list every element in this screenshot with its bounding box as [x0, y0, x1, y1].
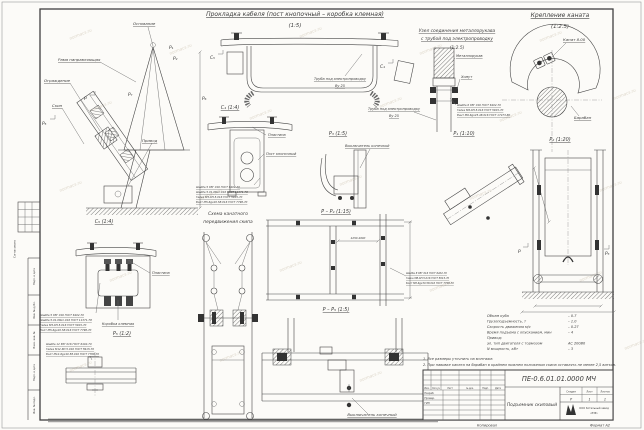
watermark-text: normacs.ru [219, 349, 243, 363]
format-label: Формат А2 [590, 424, 611, 428]
pp4-spec-line: Гайка М8-6Н.5.016 ГОСТ 5915-70 [406, 276, 450, 280]
watermark-text: normacs.ru [539, 29, 563, 43]
watermark-text: normacs.ru [613, 87, 637, 101]
drawing-name: Подъемник скиповый [507, 402, 557, 408]
hose-spec-line: Шайба 6 65Г 016 ГОСТ 6402-70 [457, 103, 501, 107]
c5-spec-line: Болт М5-6gх20.58.016 ГОСТ 7798-70 [40, 328, 92, 332]
view-cable-routing: Прокладка кабеля (пост кнопочный – короб… [206, 11, 414, 106]
view-p2-front-frame: Р₂ (1:20) Р Р₃ [518, 137, 616, 314]
tech-value: АС 200В0 [567, 342, 586, 346]
clamp-label: Хомут [460, 75, 473, 79]
pp4-spec-line: Шайба 8 65Г 016 ГОСТ 6402-70 [406, 271, 447, 275]
marker-p1: Р₁ [169, 45, 174, 51]
c4-spec-line: Гайка М5-6Н.5.016 ГОСТ 5915-70 [196, 195, 243, 199]
rev-col-header: № док. [466, 387, 474, 390]
view-c4-button-post: С₄ (1:4) Пластина Пост кнопочный Шайба 5… [196, 105, 297, 204]
cable-routing-title: Прокладка кабеля (пост кнопочный – короб… [206, 11, 384, 18]
hose-pipe-size-label: Ву 25 [389, 114, 400, 118]
tech-value: – 3 [568, 347, 573, 351]
view-rope-scheme: Схема канатного передвижения скипа [198, 211, 258, 420]
hose-unit-title-1: Узел соединения металлорукава [419, 28, 496, 34]
company-name-1: ООО Котельный завод [579, 406, 609, 410]
role-label: ГИП [425, 401, 430, 405]
view-p1-incline-detail: Р₁ (1:10) [438, 131, 550, 228]
drawing-sheet: normacs.ru normacs.ru normacs.ru normacs… [0, 0, 644, 430]
watermark-text: normacs.ru [59, 179, 83, 193]
c4-plate-label: Пластина [268, 133, 286, 137]
watermark-text: normacs.ru [299, 25, 323, 39]
hose-pipe-label: Труба под электропроводку [368, 107, 421, 111]
company-name-2: «РЗР» [590, 411, 598, 415]
view-c5-terminal-box: С₅ (1:4) Пластина Коробка клемная Шайба … [40, 219, 170, 332]
watermark-text: normacs.ru [469, 187, 493, 201]
p5-title: Р₅ (1:2) [113, 331, 131, 337]
stamp-soglasovano-label: Согласовано [13, 240, 17, 258]
c5-spec-line: Гайка М5-6Н.5.016 ГОСТ 5915-70 [40, 323, 87, 327]
sheet-value: 1 [588, 398, 590, 402]
watermark-text: normacs.ru [109, 269, 133, 283]
pp4-spec-line: Болт М8-6gх30.58.016 ГОСТ 7798-70 [406, 281, 454, 285]
c5-spec-line: Шайба 5 65Г 016 ГОСТ 6402-70 [40, 313, 84, 317]
tech-label: Время подъема с опусканием, мин [487, 331, 552, 335]
stamp-field-label: Подп. и дата [32, 364, 36, 381]
marker-c5: С₅ [210, 55, 215, 61]
tech-value: – 1.0 [568, 320, 577, 324]
left-stamp-strip: Согласовано Подп. и дата Инв. № дубл. Вз… [13, 202, 41, 420]
note-2: 2. При навивке каната на барабан в крайн… [423, 363, 616, 367]
stamp-field-label: Взам. инв. № [32, 331, 36, 348]
c4-title: С₄ (1:4) [221, 105, 240, 111]
marker-p6: Р₆ [202, 96, 207, 102]
drawing-canvas: normacs.ru normacs.ru normacs.ru normacs… [0, 0, 644, 430]
tech-label: Привод: [487, 336, 502, 340]
rope-fastening-title: Крепление каната [531, 12, 590, 19]
rev-col-header: Кол.уч [432, 387, 440, 390]
tech-value: – 4 [568, 331, 573, 335]
sheet-header: Лист [586, 390, 593, 394]
doc-number: ПЕ-0.6.01.01.0000 МЧ [522, 375, 597, 383]
rev-col-header: Изм. [424, 387, 429, 390]
hose-spec-line: Гайка М6-6Н.5.016 ГОСТ 5915-70 [457, 108, 504, 112]
hose-unit-title-2: с трубой под электропроводку [421, 36, 493, 42]
p5-spec-line: Болт М12-6gх40.58.016 ГОСТ 7798-70 [46, 352, 99, 356]
p5-spec-line: Гайка М12-6Н.5.016 ГОСТ 5915-70 [46, 347, 94, 351]
p3-switch-label: Выключатель конечный [345, 144, 390, 148]
watermark-text: normacs.ru [359, 369, 383, 383]
stamp-field-label: Инв. № подл. [32, 396, 36, 413]
c4-spec-line: Болт М5-6gх20.58.016 ГОСТ 7798-70 [196, 200, 248, 204]
title-block: ПЕ-0.6.01.01.0000 МЧ Подъемник скиповый … [423, 370, 613, 420]
stamp-field-label: Инв. № дубл. [32, 301, 36, 318]
c4-post-label: Пост кнопочный [266, 152, 297, 156]
conduit-size-label: Ву 25 [335, 84, 346, 88]
marker-p2: Р₂ [173, 56, 178, 62]
p2-marker-right: Р₃ [605, 251, 610, 257]
role-label: Разраб. [425, 391, 435, 395]
pp5-title: Р – Р₅ (1:5) [323, 307, 350, 313]
metal-hose-label: Металлорукав [456, 54, 483, 58]
tech-label: N мощность, кВт [487, 347, 519, 351]
c4-spec-line: Шайба 5.01.08кп.016 ГОСТ 11371-78 [196, 190, 248, 194]
sheets-header: Листов [600, 390, 610, 394]
watermark-text: normacs.ru [339, 173, 363, 187]
pp5-switch-label: Выключатель конечный [347, 412, 397, 417]
watermark-text: normacs.ru [249, 107, 273, 121]
rev-col-header: Лист [447, 387, 453, 390]
tech-value: – 0.27 [568, 325, 579, 329]
p1-title: Р₁ (1:10) [453, 131, 474, 137]
role-label: Провер. [425, 396, 436, 400]
view-pp4-plan: Р – Р₄ (1:15) 4250-4600 Шайба 8 65Г 016 … [266, 209, 454, 306]
rope-label: Канат 8.00 [563, 37, 586, 42]
drum-label: Барабан [574, 115, 592, 120]
notes: 1. Все размеры уточнить на монтаже. 2. П… [423, 357, 616, 367]
watermark-text: normacs.ru [599, 179, 623, 193]
scheme-title-2: передвижения скипа [203, 220, 253, 225]
base-label: Основание [133, 21, 156, 26]
drive-label: Привод [142, 138, 158, 143]
watermark-text: normacs.ru [279, 259, 303, 273]
note-1: 1. Все размеры уточнить на монтаже. [423, 357, 493, 361]
pp4-dim-label: 4250-4600 [351, 236, 366, 240]
conduit-label: Труба под электропроводку [314, 77, 367, 81]
guard-label: Ограждение [44, 78, 71, 83]
marker-c4: С₄ [380, 64, 385, 70]
p5-spec-line: Шайба 12 65Г 016 ГОСТ 6402-70 [46, 342, 92, 346]
stamp-field-label: Подп. и дата [32, 268, 36, 285]
marker-p7: Р₇ [128, 92, 133, 98]
watermark-text: normacs.ru [69, 27, 93, 41]
c5-spec-line: Шайба 5.01.08кп.016 ГОСТ 11371-78 [40, 318, 92, 322]
pp4-title: Р – Р₄ (1:15) [321, 209, 351, 215]
stage-header: Стадия [566, 390, 576, 394]
scheme-title-1: Схема канатного [208, 211, 248, 217]
c5-box-label: Коробка клемная [102, 322, 134, 326]
p2-marker-left: Р [518, 249, 521, 255]
p2-title: Р₂ (1:20) [549, 137, 570, 143]
marker-p5: Р₅ [42, 121, 47, 127]
watermark-text: normacs.ru [69, 359, 93, 373]
rev-col-header: Подп. [482, 387, 489, 390]
tech-characteristics: Объем куба – 0.7 Грузоподъемность, т – 1… [487, 314, 586, 351]
tech-value: – 0.7 [568, 314, 577, 318]
c4-spec-line: Шайба 5 65Г 016 ГОСТ 6402-70 [196, 185, 240, 189]
p3-title: Р₃ (1:5) [329, 131, 347, 137]
bottom-margin: Копировал Формат А2 [477, 424, 611, 428]
cable-routing-scale: (1:5) [289, 23, 302, 29]
c5-plate-label: Пластина [152, 271, 170, 275]
tech-label: эл. тип двигателя с тормозом [487, 342, 543, 346]
tech-label: Грузоподъемность, т [487, 320, 527, 324]
tech-label: Объем куба [487, 314, 509, 318]
skip-label: Скип [52, 103, 63, 108]
hose-spec-line: Винт М6-6gх25.48.016 ГОСТ 17473-80 [457, 113, 511, 117]
guide-frame-label: Рама направляющая [58, 57, 101, 62]
sheets-value: 1 [604, 398, 606, 402]
view-p3-limit-switch: Р₃ (1:5) Выключатель конечный [321, 131, 390, 208]
rope-fastening-scale: (1:2.5) [551, 24, 569, 30]
rev-col-header: Дата [495, 387, 501, 390]
kopiroval-label: Копировал [477, 424, 498, 428]
marker-p: Р [84, 96, 87, 102]
c5-title: С₅ (1:4) [95, 219, 114, 225]
tech-label: Скорость движения м/с [487, 325, 531, 329]
